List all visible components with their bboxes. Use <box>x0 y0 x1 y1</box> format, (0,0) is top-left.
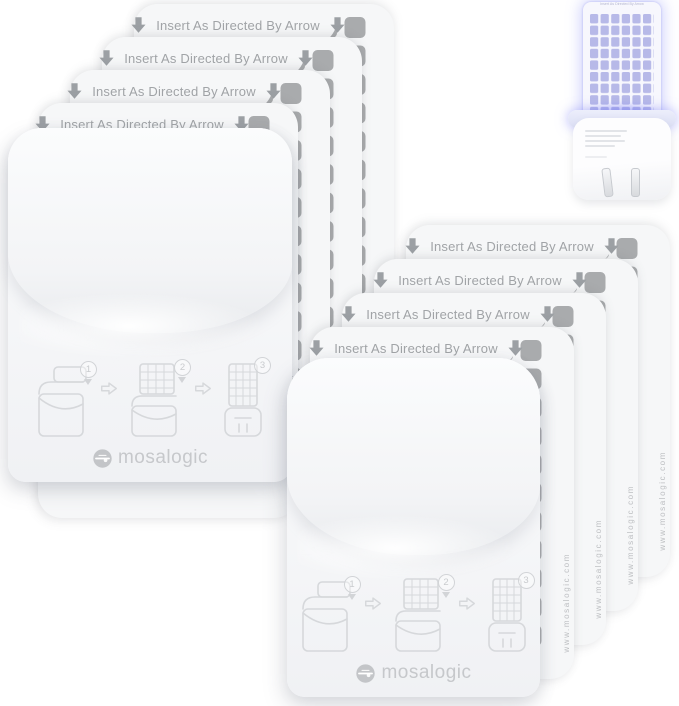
plug-prong <box>601 168 613 198</box>
storage-pouch: 1 2 <box>287 358 540 697</box>
device-glue-card: Insert As Directed By Arrow <box>583 2 661 126</box>
card-header-label: Insert As Directed By Arrow <box>430 239 594 254</box>
down-arrow-icon <box>372 271 389 289</box>
storage-pouch: 1 2 <box>8 128 292 482</box>
down-arrow-icon <box>265 82 282 100</box>
mosalogic-logo-icon <box>92 448 113 469</box>
next-step-arrow-icon <box>193 380 213 397</box>
step-arrow-icon <box>442 592 450 598</box>
down-arrow-icon <box>603 237 620 255</box>
card-url: www.mosalogic.com <box>594 519 603 619</box>
card-url: www.mosalogic.com <box>626 485 635 585</box>
plug-prong <box>631 168 640 197</box>
step-1-icon: 1 <box>298 579 356 655</box>
pouch-shine <box>297 515 515 581</box>
mosalogic-logo-icon <box>355 663 376 684</box>
step-number: 2 <box>438 574 455 591</box>
plug-device: Insert As Directed By Arrow <box>566 0 678 208</box>
step-arrow-icon <box>348 594 356 600</box>
step-number: 1 <box>344 576 361 593</box>
next-step-arrow-icon <box>99 380 119 397</box>
brand-name: mosalogic <box>118 447 208 469</box>
card-header-label: Insert As Directed By Arrow <box>92 84 256 99</box>
next-step-arrow-icon <box>363 595 383 612</box>
step-2-icon: 2 <box>390 577 450 655</box>
card-url: www.mosalogic.com <box>562 553 571 653</box>
down-arrow-icon <box>98 49 115 67</box>
brand-logo: mosalogic <box>287 662 540 684</box>
device-spec-text <box>585 145 615 147</box>
down-arrow-icon <box>539 305 556 323</box>
device-spec-text <box>585 156 607 158</box>
down-arrow-icon <box>66 82 83 100</box>
step-arrow-icon <box>178 377 186 383</box>
device-body <box>573 118 671 200</box>
step-number: 3 <box>254 357 271 374</box>
next-step-arrow-icon <box>457 595 477 612</box>
instruction-steps: 1 2 <box>18 360 282 440</box>
device-spec-text <box>585 135 621 137</box>
step-number: 2 <box>174 359 191 376</box>
card-header-label: Insert As Directed By Arrow <box>398 273 562 288</box>
instruction-steps: 1 2 <box>297 575 530 655</box>
down-arrow-icon <box>329 16 346 34</box>
down-arrow-icon <box>571 271 588 289</box>
pouch-shine <box>19 293 263 359</box>
down-arrow-icon <box>308 339 325 357</box>
brand-logo: mosalogic <box>8 447 292 469</box>
down-arrow-icon <box>507 339 524 357</box>
card-header-label: Insert As Directed By Arrow <box>366 307 530 322</box>
step-number: 3 <box>518 572 535 589</box>
card-url: www.mosalogic.com <box>658 451 667 551</box>
down-arrow-icon <box>340 305 357 323</box>
step-3-icon: 3 <box>484 575 530 655</box>
step-number: 1 <box>80 361 97 378</box>
step-3-icon: 3 <box>220 360 266 440</box>
down-arrow-icon <box>404 237 421 255</box>
device-spec-text <box>585 140 625 142</box>
brand-name: mosalogic <box>381 662 471 684</box>
step-arrow-icon <box>84 379 92 385</box>
device-card-header: Insert As Directed By Arrow <box>587 2 657 6</box>
card-header-label: Insert As Directed By Arrow <box>156 18 320 33</box>
device-card-grid <box>590 14 654 116</box>
step-2-icon: 2 <box>126 362 186 440</box>
product-image: Insert As Directed By Arrow www.mosalogi… <box>0 0 679 706</box>
down-arrow-icon <box>130 16 147 34</box>
step-1-icon: 1 <box>34 364 92 440</box>
down-arrow-icon <box>297 49 314 67</box>
card-header-label: Insert As Directed By Arrow <box>124 51 288 66</box>
card-header-label: Insert As Directed By Arrow <box>334 341 498 356</box>
device-spec-text <box>585 130 627 132</box>
